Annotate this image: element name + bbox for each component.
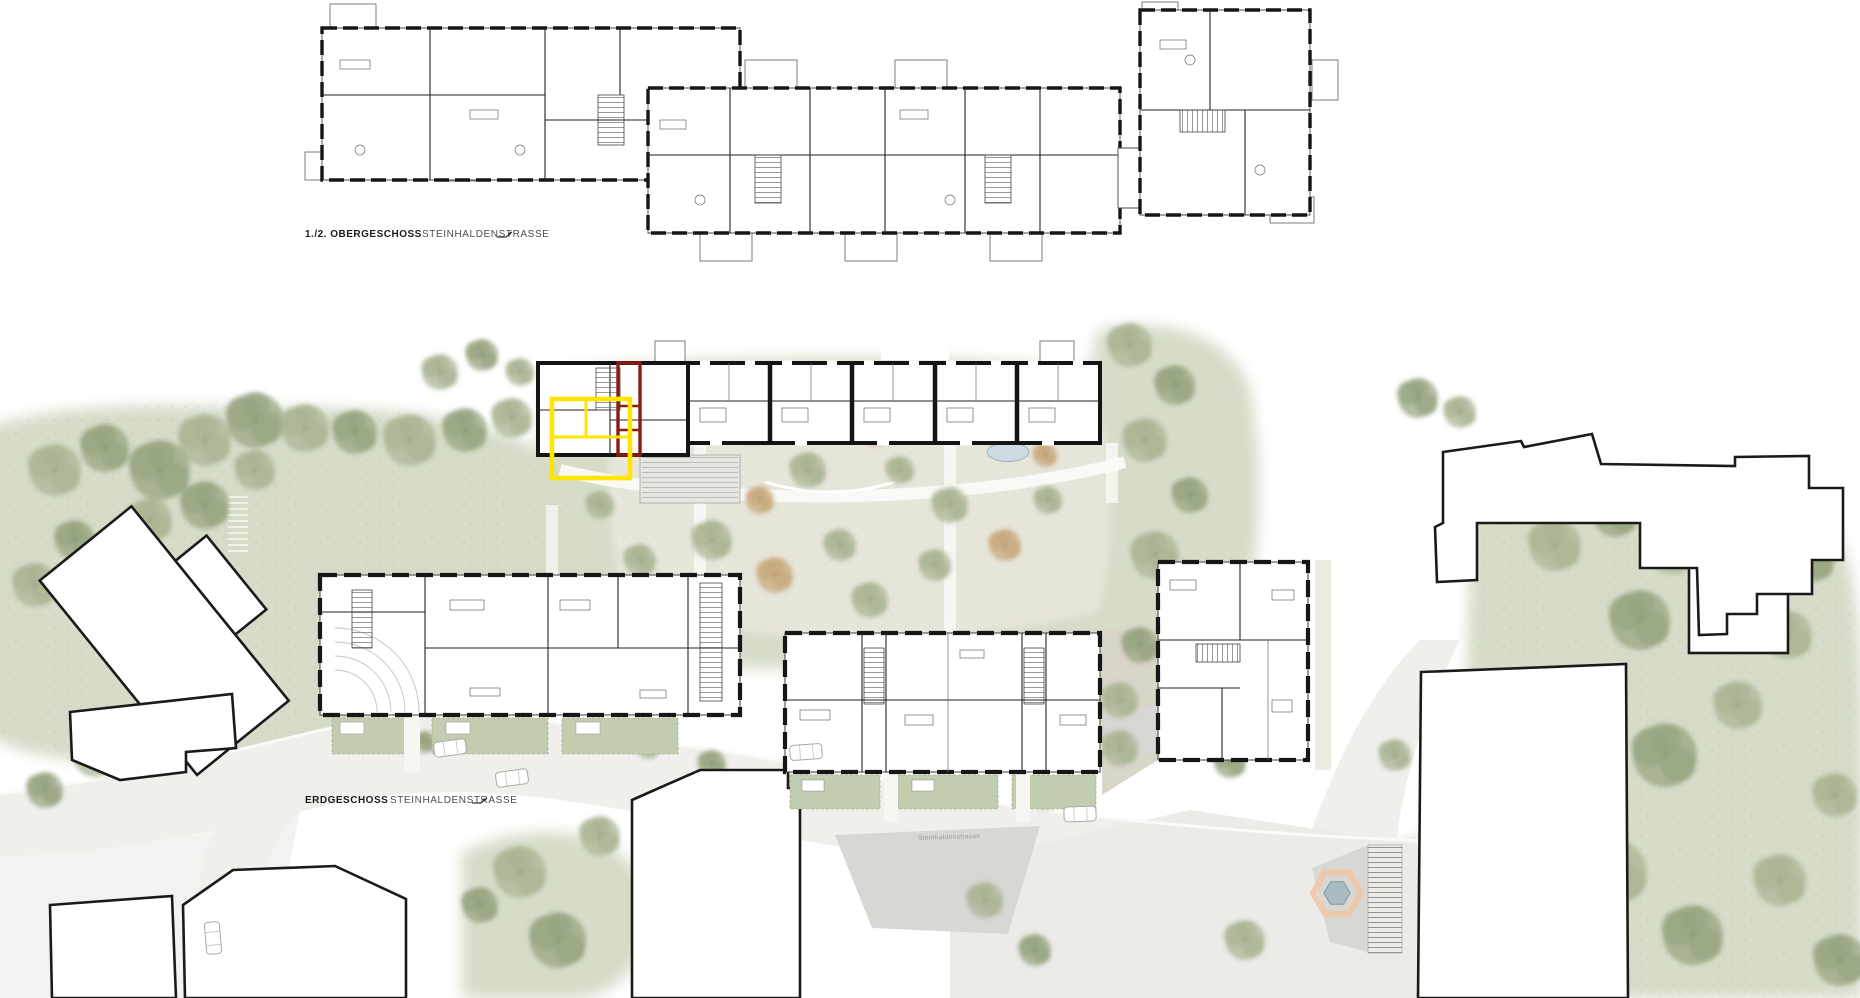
ground-plan-subtitle: STEINHALDENSTRASSE [390, 795, 518, 806]
tree [1443, 396, 1476, 428]
upper-plan-caption: 1./2. OBERGESCHOSS STEINHALDENSTRASSE [305, 229, 550, 240]
exterior-stairs [1368, 845, 1402, 953]
pond [987, 443, 1029, 462]
tree [1397, 378, 1438, 418]
ground-plan-title: ERDGESCHOSS [305, 795, 388, 806]
architectural-site-plan: 1./2. OBERGESCHOSS STEINHALDENSTRASSE ER… [0, 0, 1860, 998]
car [204, 921, 222, 954]
upper-plan-subtitle: STEINHALDENSTRASSE [422, 229, 550, 240]
neighbor-building-southeast [1418, 664, 1628, 998]
tree [491, 398, 532, 438]
building-east-plan [1158, 562, 1308, 760]
neighbor-building-sw1 [50, 896, 176, 998]
car [1064, 806, 1097, 822]
ground-plan-caption: ERDGESCHOSS STEINHALDENSTRASSE [305, 795, 518, 806]
building-southwest-plan [320, 575, 740, 715]
upper-plan-title: 1./2. OBERGESCHOSS [305, 229, 422, 240]
tree [505, 358, 534, 386]
building-southmid-plan [785, 633, 1100, 772]
tree [465, 339, 498, 371]
neighbor-building-south [632, 770, 800, 998]
upper-floor-plan [305, 2, 1338, 261]
car [790, 743, 823, 760]
forecourt-shadow [835, 826, 1040, 934]
tree [421, 354, 458, 390]
